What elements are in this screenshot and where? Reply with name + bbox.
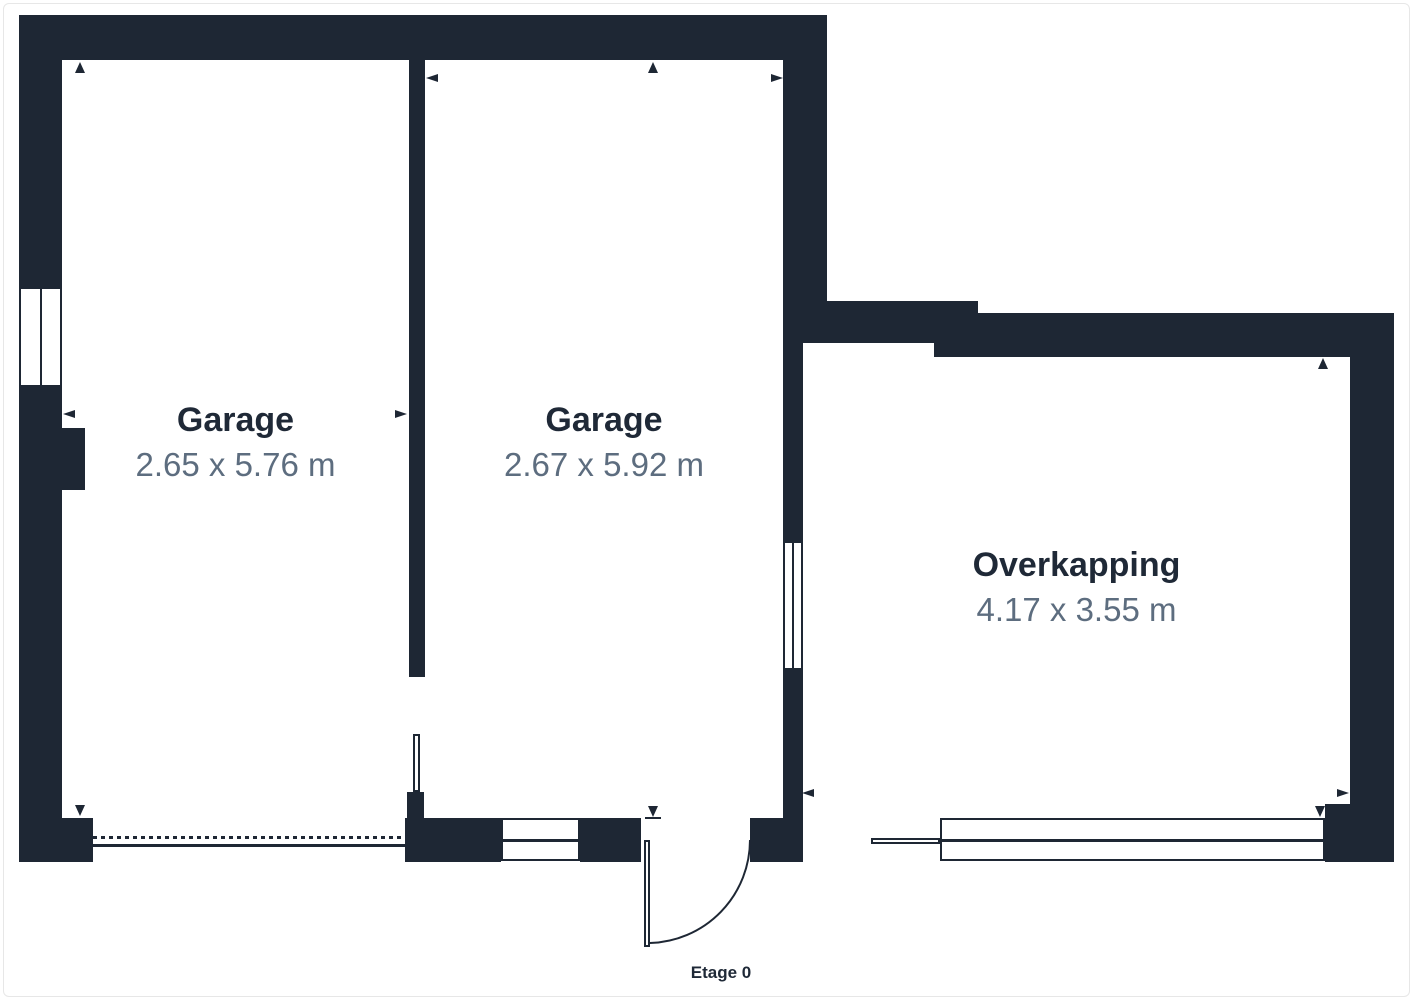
wall-segment — [783, 15, 827, 343]
wall-segment — [750, 818, 803, 862]
overkapping-edge-beam — [871, 838, 940, 844]
window-divider — [942, 839, 1323, 842]
measure-arrow-up-icon — [1318, 358, 1328, 369]
measure-arrow-left-icon — [802, 789, 814, 797]
wall-segment — [580, 818, 641, 862]
window — [940, 818, 1325, 861]
floorplan-canvas: Garage 2.65 x 5.76 m Garage 2.67 x 5.92 … — [0, 0, 1413, 1000]
wall-segment — [19, 387, 62, 818]
window-divider — [792, 543, 794, 668]
room-label-garage-1: Garage 2.65 x 5.76 m — [62, 400, 409, 483]
wall-segment — [407, 792, 424, 818]
floor-label: Etage 0 — [571, 963, 871, 983]
wall-segment — [19, 15, 62, 287]
measure-arrow-left-icon — [426, 74, 438, 82]
room-dimensions: 2.67 x 5.92 m — [425, 447, 783, 483]
garage-door-line — [93, 844, 405, 847]
room-dimensions: 2.65 x 5.76 m — [62, 447, 409, 483]
measure-arrow-up-icon — [75, 62, 85, 73]
measure-arrow-down-icon — [1315, 806, 1325, 817]
room-name: Garage — [425, 400, 783, 441]
measure-arrow-down-icon — [75, 805, 85, 816]
window-divider — [40, 289, 42, 385]
door-leaf — [413, 734, 420, 792]
measure-arrow-down-icon — [648, 806, 658, 817]
window — [501, 818, 580, 861]
wall-segment — [405, 818, 501, 862]
wall-segment — [19, 818, 93, 862]
room-name: Garage — [62, 400, 409, 441]
garage-door-dashed-line — [93, 836, 405, 839]
wall-segment — [19, 15, 827, 60]
window-divider — [503, 839, 578, 842]
room-label-garage-2: Garage 2.67 x 5.92 m — [425, 400, 783, 483]
wall-segment — [409, 60, 425, 677]
measure-arrow-right-icon — [771, 74, 783, 82]
room-name: Overkapping — [803, 545, 1350, 586]
wall-segment — [1325, 804, 1394, 862]
wall-segment — [783, 670, 803, 818]
measure-arrow-up-icon — [648, 62, 658, 73]
measure-arrow-right-icon — [1337, 789, 1349, 797]
wall-segment — [783, 343, 803, 541]
wall-segment — [1350, 357, 1394, 804]
door-leaf — [644, 840, 650, 947]
room-label-overkapping: Overkapping 4.17 x 3.55 m — [803, 545, 1350, 628]
room-dimensions: 4.17 x 3.55 m — [803, 592, 1350, 628]
wall-segment — [934, 313, 1394, 357]
door-swing-arc-path — [650, 840, 750, 943]
window — [19, 287, 62, 387]
window — [783, 541, 803, 670]
measure-arrow-baseline — [645, 817, 661, 819]
